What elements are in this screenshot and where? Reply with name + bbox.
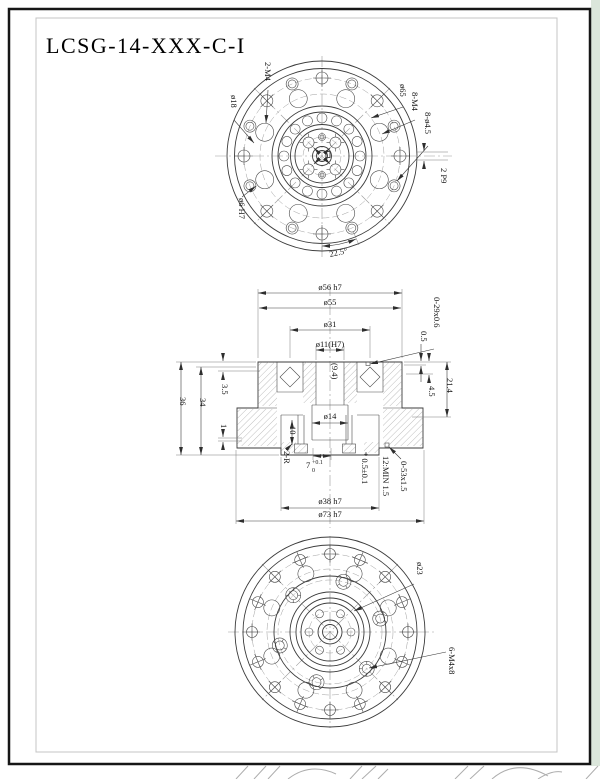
dim-dia56: ø56 h7 — [318, 282, 341, 292]
label-2-M4: 2-M4 — [263, 62, 273, 82]
dim-3-5: 3.5 — [220, 384, 230, 395]
note-oring-bottom: 0-53x1.5 — [399, 461, 409, 491]
dim-4-5: 4.5 — [427, 386, 437, 397]
dim-oring-top: 0-29x0.6 — [432, 297, 442, 327]
label-6-M4x8: 6-M4x8 — [447, 647, 457, 674]
dim-21-4: 21.4 — [445, 378, 455, 394]
dim-1: 1 — [219, 424, 229, 428]
desk-margin — [591, 0, 600, 766]
dim-dia38: ø38 h7 — [318, 496, 341, 506]
dim-7: 7 — [306, 460, 310, 470]
label-dia65: ø65 — [398, 84, 408, 97]
dim-7-tol-lower: 0 — [312, 468, 315, 474]
label-8-M4: 8-M4 — [410, 92, 420, 112]
dim-dia55: ø55 — [324, 297, 337, 307]
drawing-sheet: LCSG-14-XXX-C-I — [0, 0, 600, 779]
drawing-page: LCSG-14-XXX-C-I — [0, 0, 600, 779]
dim-dia11: ø11(H7) — [316, 339, 345, 349]
dim-34: 34 — [198, 398, 208, 407]
label-dia23: ø23 — [415, 562, 425, 575]
label-dia6-H7: ø6 H7 — [237, 198, 247, 219]
dim-2-R: 2-R — [282, 451, 292, 464]
drawing-title: LCSG-14-XXX-C-I — [46, 33, 246, 58]
dim-9-4: (9.4) — [330, 363, 340, 379]
dim-dia14: ø14 — [324, 411, 338, 421]
note-star-0-5: * 0.5±0.1 — [360, 452, 370, 484]
dim-10: 10 — [288, 426, 298, 435]
note-12-min: 12:MIN 1.5 — [381, 456, 391, 496]
label-8-dia4-5: 8-ø4.5 — [423, 112, 433, 134]
sheet-outer-border — [9, 9, 590, 764]
dim-dia31: ø31 — [324, 319, 337, 329]
label-keyway-2P9: 2 P9 — [439, 168, 449, 183]
dim-36: 36 — [178, 397, 188, 406]
dim-0-5: 0.5 — [419, 331, 429, 342]
label-dia18: ø18 — [229, 95, 239, 108]
dim-7-tol-upper: +0.1 — [312, 460, 323, 466]
dim-dia73: ø73 h7 — [318, 509, 341, 519]
